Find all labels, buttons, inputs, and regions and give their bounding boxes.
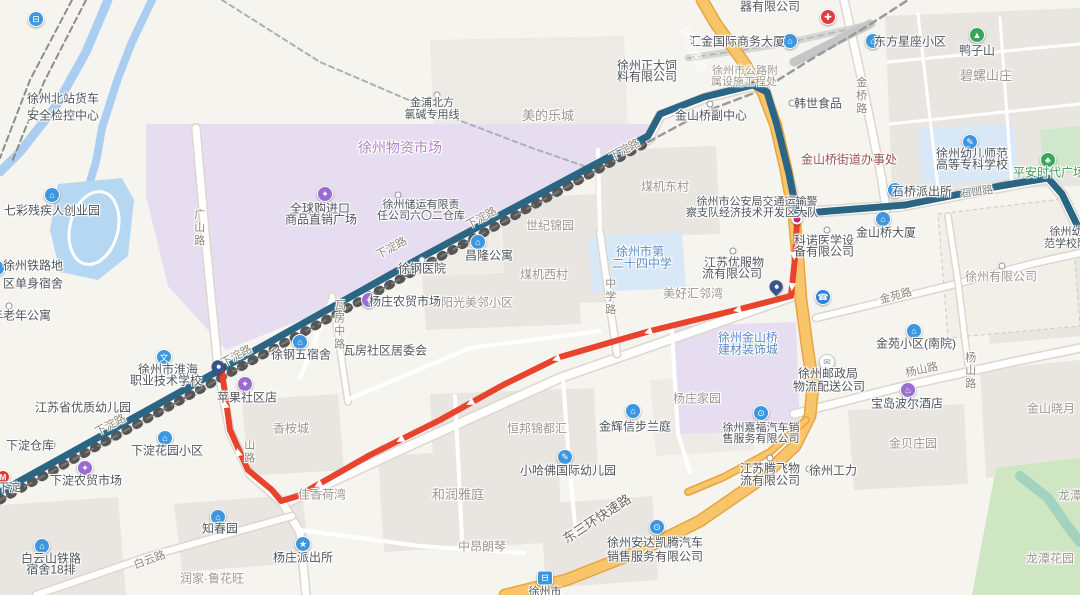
- marker-glyph: ♨: [904, 385, 912, 396]
- area-meidelecheng: [430, 36, 628, 134]
- building-icon[interactable]: ⌂: [210, 509, 226, 525]
- car-dealer-icon[interactable]: ⊙: [753, 405, 769, 421]
- marker-glyph: ⊙: [653, 522, 661, 533]
- poi-dot[interactable]: [730, 248, 737, 255]
- area-herunyating: [378, 446, 562, 552]
- building-icon[interactable]: ⌂: [865, 33, 881, 49]
- map-canvas[interactable]: ⊟⌂⌂✦⌂✚⌂▲✎♣★▲⌂⌂✦☎文✦⌂⌂✦M⌂⌂★⌂✎⊙⊙✉⌂♨⊟徐州北站货车安…: [0, 0, 1080, 595]
- train-station-icon[interactable]: ⊟: [28, 11, 44, 27]
- marker-glyph: ⌂: [870, 36, 875, 46]
- school-icon[interactable]: ✎: [962, 134, 978, 150]
- police-icon[interactable]: ★: [887, 182, 903, 198]
- poi-dot[interactable]: [49, 442, 56, 449]
- poi-dot[interactable]: [6, 303, 13, 310]
- building-icon[interactable]: ⌂: [44, 187, 60, 203]
- park-icon[interactable]: ♣: [1040, 152, 1056, 168]
- marker-glyph: ▲: [973, 30, 982, 40]
- map-graphics: [0, 0, 1080, 595]
- marker-glyph: ✉: [823, 357, 831, 368]
- poi-dot[interactable]: [824, 227, 831, 234]
- marker-glyph: ✦: [365, 295, 373, 306]
- marker-glyph: 文: [159, 351, 168, 364]
- marker-glyph: ✚: [824, 12, 832, 23]
- marker-glyph: ⊟: [541, 573, 549, 584]
- mountain-icon[interactable]: ▲: [969, 27, 985, 43]
- poi-dot[interactable]: [806, 466, 813, 473]
- marker-glyph: ♣: [1045, 155, 1051, 165]
- marker-glyph: ★: [299, 539, 307, 550]
- poi-dot[interactable]: [767, 455, 774, 462]
- shopping-icon[interactable]: ✦: [361, 292, 377, 308]
- building-icon[interactable]: ⌂: [906, 323, 922, 339]
- marker-glyph: ⊟: [32, 14, 40, 25]
- area-jiancai-city: [672, 322, 800, 434]
- hospital-icon[interactable]: ✚: [820, 9, 836, 25]
- building-icon[interactable]: ⌂: [34, 538, 50, 554]
- telecom-icon[interactable]: ☎: [815, 289, 831, 305]
- building-icon[interactable]: ⌂: [157, 430, 173, 446]
- marker-glyph: ⌂: [162, 433, 167, 443]
- marker-glyph: M: [0, 473, 6, 482]
- mail-icon[interactable]: ✉: [819, 354, 835, 370]
- marker-glyph: ⌂: [880, 214, 885, 224]
- poi-dot[interactable]: [789, 100, 796, 107]
- marker-glyph: ⌂: [630, 406, 635, 416]
- poi-dot[interactable]: [999, 263, 1006, 270]
- poi-dot[interactable]: [395, 192, 402, 199]
- building-icon[interactable]: ⌂: [292, 334, 308, 350]
- marker-glyph: ⌂: [787, 36, 792, 46]
- area-tielusushe: [0, 497, 126, 595]
- area-zhongang: [540, 496, 658, 588]
- river: [0, 0, 108, 172]
- marker-glyph: ⌂: [911, 326, 916, 336]
- building-icon[interactable]: ⌂: [875, 211, 891, 227]
- school-icon[interactable]: ✎: [557, 449, 573, 465]
- building-icon[interactable]: ⌂: [470, 234, 486, 250]
- marker-glyph: ✦: [321, 189, 329, 200]
- marker-glyph: ⌂: [297, 337, 302, 347]
- marker-glyph: ⌂: [39, 541, 44, 551]
- police-icon[interactable]: ★: [295, 536, 311, 552]
- marker-glyph: ⌂: [49, 190, 54, 200]
- shopping-icon[interactable]: ✦: [77, 460, 93, 476]
- hotel-icon[interactable]: ♨: [900, 382, 916, 398]
- marker-glyph: ✦: [241, 379, 249, 390]
- route-start-dot[interactable]: [792, 214, 803, 225]
- area-jinbeizhuangyuan: [848, 404, 968, 490]
- marker-glyph: ★: [891, 185, 899, 196]
- marker-glyph: ▲: [801, 198, 813, 210]
- shopping-icon[interactable]: ✦: [317, 186, 333, 202]
- marker-glyph: ✦: [81, 463, 89, 474]
- bus-station-icon[interactable]: ⊟: [537, 571, 553, 586]
- area-pingan-green: [1040, 126, 1080, 176]
- building-icon[interactable]: ⌂: [782, 33, 798, 49]
- marker-glyph: ⌂: [475, 237, 480, 247]
- school-wen-icon[interactable]: 文: [156, 349, 172, 365]
- marker-glyph: ✎: [561, 452, 569, 463]
- nav-arrow-icon[interactable]: ▲: [800, 197, 814, 211]
- area-xiangancheng: [242, 394, 344, 476]
- poi-dot[interactable]: [434, 92, 441, 99]
- area-yangguang: [422, 270, 581, 330]
- shopping-icon[interactable]: ✦: [237, 376, 253, 392]
- marker-glyph: ✎: [966, 137, 974, 148]
- car-dealer-icon[interactable]: ⊙: [649, 519, 665, 535]
- poi-dot[interactable]: [419, 257, 426, 264]
- poi-dot[interactable]: [707, 101, 714, 108]
- marker-glyph: ☎: [817, 292, 828, 303]
- building-icon[interactable]: ⌂: [625, 403, 641, 419]
- marker-glyph: ⌂: [215, 512, 220, 522]
- marker-glyph: ⊙: [757, 408, 765, 419]
